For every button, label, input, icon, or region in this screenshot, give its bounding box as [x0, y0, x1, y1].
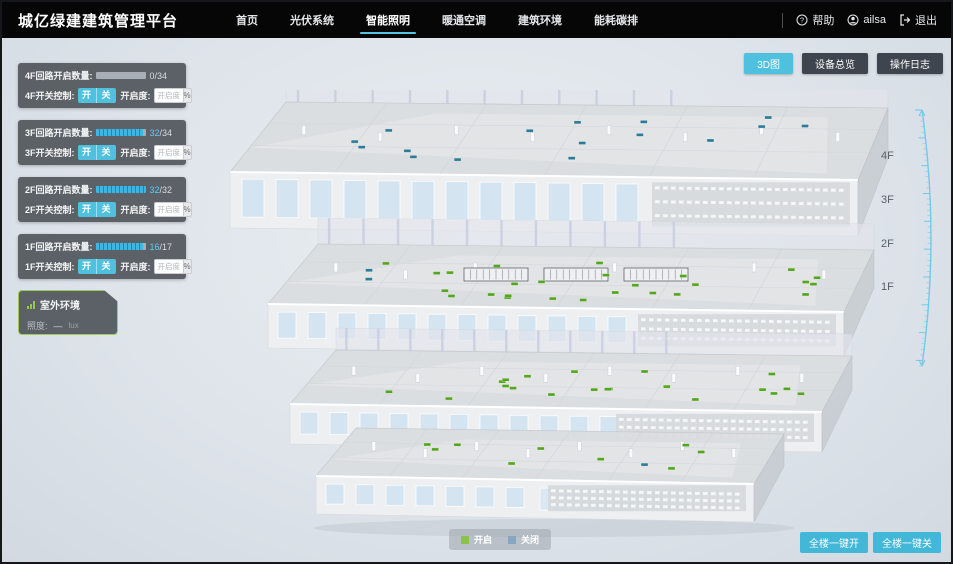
app-window: 城亿绿建建筑管理平台 首页 光伏系统 智能照明 暖通空调 建筑环境 能耗碳排 ?…	[0, 0, 953, 564]
light-marker[interactable]	[441, 289, 448, 292]
switch-control-label: 4F开关控制:	[25, 89, 75, 102]
light-marker[interactable]	[802, 124, 809, 127]
header-divider	[782, 13, 783, 28]
light-marker[interactable]	[591, 388, 598, 391]
circuit-count-value: 0/34	[150, 71, 168, 81]
switch-group: 开 关	[78, 202, 116, 217]
dim-label: 开启度:	[121, 260, 151, 273]
switch-group: 开 关	[78, 259, 116, 274]
light-marker[interactable]	[814, 276, 821, 279]
light-marker[interactable]	[538, 280, 545, 283]
light-marker[interactable]	[448, 294, 455, 297]
light-marker[interactable]	[454, 158, 461, 161]
light-marker[interactable]	[707, 139, 714, 142]
nav-pv-system[interactable]: 光伏系统	[274, 2, 350, 38]
floor-label-1f[interactable]: 1F	[881, 281, 905, 293]
light-marker[interactable]	[759, 388, 766, 391]
light-marker[interactable]	[385, 129, 392, 132]
logout-icon	[899, 14, 911, 26]
circuit-count-label: 3F回路开启数量:	[25, 126, 93, 139]
light-marker[interactable]	[511, 282, 518, 285]
percent-button[interactable]: %	[184, 259, 192, 274]
light-marker[interactable]	[454, 443, 461, 446]
circuit-count-label: 4F回路开启数量:	[25, 69, 93, 82]
light-marker[interactable]	[351, 140, 358, 143]
light-marker[interactable]	[580, 298, 587, 301]
light-marker[interactable]	[640, 120, 647, 123]
light-marker[interactable]	[365, 278, 372, 281]
illuminance-value: —	[54, 321, 63, 331]
light-marker[interactable]	[641, 370, 648, 373]
light-marker[interactable]	[597, 458, 604, 461]
signal-bars-icon	[27, 301, 35, 309]
legend-on-label: 开启	[474, 533, 492, 546]
percent-button[interactable]: %	[184, 88, 192, 103]
count-total: /34	[155, 71, 168, 81]
nav-building-env[interactable]: 建筑环境	[502, 2, 578, 38]
light-marker[interactable]	[649, 292, 656, 295]
on-button[interactable]: 开	[78, 145, 97, 160]
progress-fill	[96, 129, 143, 136]
light-marker[interactable]	[446, 271, 453, 274]
light-marker[interactable]	[385, 390, 392, 393]
circuit-progress-bar	[96, 129, 146, 136]
light-marker[interactable]	[674, 293, 681, 296]
switch-control-label: 1F开关控制:	[25, 260, 75, 273]
off-button[interactable]: 关	[97, 259, 116, 274]
light-marker[interactable]	[571, 370, 578, 373]
nav-hvac[interactable]: 暖通空调	[426, 2, 502, 38]
switch-control-label: 2F开关控制:	[25, 203, 75, 216]
light-marker[interactable]	[810, 283, 817, 286]
light-marker[interactable]	[568, 157, 575, 160]
light-marker[interactable]	[524, 375, 531, 378]
circuit-progress-bar	[96, 243, 146, 250]
light-marker[interactable]	[549, 297, 556, 300]
light-marker[interactable]	[410, 155, 417, 158]
light-marker[interactable]	[526, 129, 533, 132]
main-nav: 首页 光伏系统 智能照明 暖通空调 建筑环境 能耗碳排	[220, 2, 654, 38]
light-marker[interactable]	[663, 385, 670, 388]
light-marker[interactable]	[797, 392, 804, 395]
light-marker[interactable]	[493, 265, 500, 268]
header-right: ? 帮助 ailsa 退出	[782, 2, 951, 38]
switch-control-label: 3F开关控制:	[25, 146, 75, 159]
view-switcher: 3D图 设备总览 操作日志	[744, 53, 943, 74]
floor-panel-1f: 1F回路开启数量: 16/17 1F开关控制: 开 关 开启度: %	[18, 234, 186, 279]
count-total: /32	[160, 185, 173, 195]
light-marker[interactable]	[770, 392, 777, 395]
legend-on-swatch	[461, 536, 469, 544]
light-marker[interactable]	[698, 450, 705, 453]
illuminance-label: 照度:	[27, 319, 48, 332]
on-button[interactable]: 开	[78, 88, 97, 103]
outdoor-env-title: 室外环境	[40, 297, 80, 312]
light-marker[interactable]	[636, 133, 643, 136]
dim-label: 开启度:	[121, 89, 151, 102]
percent-button[interactable]: %	[184, 145, 192, 160]
light-marker[interactable]	[488, 293, 495, 296]
light-marker[interactable]	[668, 467, 675, 470]
light-marker[interactable]	[632, 284, 639, 287]
dim-input[interactable]	[154, 88, 184, 103]
user-name: ailsa	[863, 14, 886, 26]
light-marker[interactable]	[508, 462, 515, 465]
all-on-button[interactable]: 全楼一键开	[800, 532, 868, 553]
floor-label-2f[interactable]: 2F	[881, 238, 905, 250]
floor-panel-4f: 4F回路开启数量: 0/34 4F开关控制: 开 关 开启度: %	[18, 63, 186, 108]
circuit-count-label: 1F回路开启数量:	[25, 240, 93, 253]
count-open: 32	[150, 185, 160, 195]
circuit-count-value: 32/34	[150, 128, 173, 138]
circuit-progress-bar	[96, 72, 146, 79]
floor-panel-3f: 3F回路开启数量: 32/34 3F开关控制: 开 关 开启度: %	[18, 120, 186, 165]
light-marker[interactable]	[574, 121, 581, 124]
light-marker[interactable]	[604, 388, 611, 391]
light-marker[interactable]	[788, 268, 795, 271]
progress-fill	[96, 243, 143, 250]
light-marker[interactable]	[602, 274, 609, 277]
view-3d-button[interactable]: 3D图	[744, 53, 793, 74]
outdoor-env-panel: 室外环境 照度: — lux	[18, 290, 118, 335]
floor-label-4f[interactable]: 4F	[881, 150, 905, 162]
count-total: /17	[160, 242, 173, 252]
legend-off-swatch	[508, 536, 516, 544]
circuit-progress-bar	[96, 186, 146, 193]
nav-home[interactable]: 首页	[220, 2, 274, 38]
on-button[interactable]: 开	[78, 202, 97, 217]
light-marker[interactable]	[802, 281, 809, 284]
floor-panel-2f: 2F回路开启数量: 32/32 2F开关控制: 开 关 开启度: %	[18, 177, 186, 222]
nav-smart-lighting[interactable]: 智能照明	[350, 2, 426, 38]
app-title: 城亿绿建建筑管理平台	[2, 10, 194, 31]
dim-input[interactable]	[154, 202, 184, 217]
switch-group: 开 关	[78, 145, 116, 160]
light-marker[interactable]	[548, 393, 555, 396]
circuit-count-label: 2F回路开启数量:	[25, 183, 93, 196]
off-button[interactable]: 关	[97, 88, 116, 103]
all-off-button[interactable]: 全楼一键关	[873, 532, 941, 553]
circuit-count-value: 16/17	[150, 242, 173, 252]
light-marker[interactable]	[432, 448, 439, 451]
light-marker[interactable]	[612, 291, 619, 294]
user-icon	[847, 14, 859, 26]
building-3d-view[interactable]	[224, 90, 904, 545]
light-marker[interactable]	[537, 447, 544, 450]
light-marker[interactable]	[433, 272, 440, 275]
light-marker[interactable]	[641, 463, 648, 466]
dim-label: 开启度:	[121, 146, 151, 159]
progress-fill	[96, 186, 146, 193]
light-marker[interactable]	[692, 398, 699, 401]
light-marker[interactable]	[768, 373, 775, 376]
light-marker[interactable]	[680, 275, 687, 278]
percent-button[interactable]: %	[184, 202, 192, 217]
count-total: /34	[160, 128, 173, 138]
legend-off-label: 关闭	[521, 533, 539, 546]
light-marker[interactable]	[424, 443, 431, 446]
light-marker[interactable]	[366, 269, 373, 272]
light-marker[interactable]	[692, 283, 699, 286]
dim-input[interactable]	[154, 259, 184, 274]
status-legend: 开启 关闭	[449, 529, 551, 550]
on-button[interactable]: 开	[78, 259, 97, 274]
help-icon: ?	[796, 14, 808, 26]
light-marker[interactable]	[682, 444, 689, 447]
light-marker[interactable]	[505, 294, 512, 297]
top-bar: 城亿绿建建筑管理平台 首页 光伏系统 智能照明 暖通空调 建筑环境 能耗碳排 ?…	[2, 2, 951, 38]
light-marker[interactable]	[802, 293, 809, 296]
off-button[interactable]: 关	[97, 145, 116, 160]
light-marker[interactable]	[445, 397, 452, 400]
device-overview-button[interactable]: 设备总览	[802, 53, 868, 74]
help-link[interactable]: ? 帮助	[796, 12, 834, 28]
light-marker[interactable]	[382, 262, 389, 265]
light-marker[interactable]	[358, 146, 365, 149]
illuminance-unit: lux	[69, 321, 79, 330]
dim-input[interactable]	[154, 145, 184, 160]
count-open: 16	[150, 242, 160, 252]
switch-group: 开 关	[78, 88, 116, 103]
light-marker[interactable]	[502, 378, 509, 381]
svg-text:?: ?	[800, 16, 804, 25]
logout-link[interactable]: 退出	[899, 12, 937, 28]
light-marker[interactable]	[765, 116, 772, 119]
operation-log-button[interactable]: 操作日志	[877, 53, 943, 74]
light-marker[interactable]	[502, 384, 509, 387]
scale-ruler	[908, 102, 944, 374]
light-marker[interactable]	[510, 387, 517, 390]
count-open: 32	[150, 128, 160, 138]
nav-energy-carbon[interactable]: 能耗碳排	[578, 2, 654, 38]
circuit-count-value: 32/32	[150, 185, 173, 195]
light-marker[interactable]	[596, 261, 603, 264]
floor-label-3f[interactable]: 3F	[881, 194, 905, 206]
light-marker[interactable]	[404, 149, 411, 152]
user-menu[interactable]: ailsa	[847, 14, 886, 26]
off-button[interactable]: 关	[97, 202, 116, 217]
light-marker[interactable]	[579, 142, 586, 145]
light-marker[interactable]	[758, 125, 765, 128]
light-marker[interactable]	[783, 387, 790, 390]
dim-label: 开启度:	[121, 203, 151, 216]
bulk-actions: 全楼一键开 全楼一键关	[800, 532, 941, 553]
